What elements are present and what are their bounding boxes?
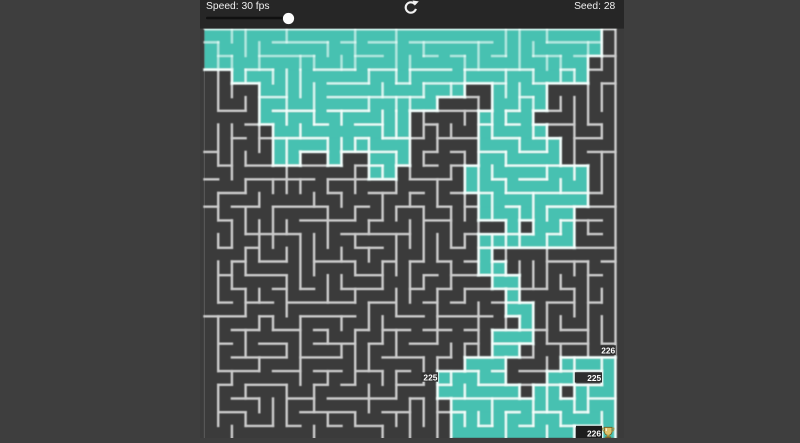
svg-text:Seed: 28: Seed: 28 [574,1,615,12]
svg-text:225: 225 [587,373,601,383]
svg-text:225: 225 [423,372,437,382]
svg-text:Speed: 30 fps: Speed: 30 fps [206,1,270,12]
svg-text:226: 226 [601,345,615,355]
svg-text:226: 226 [587,428,601,438]
